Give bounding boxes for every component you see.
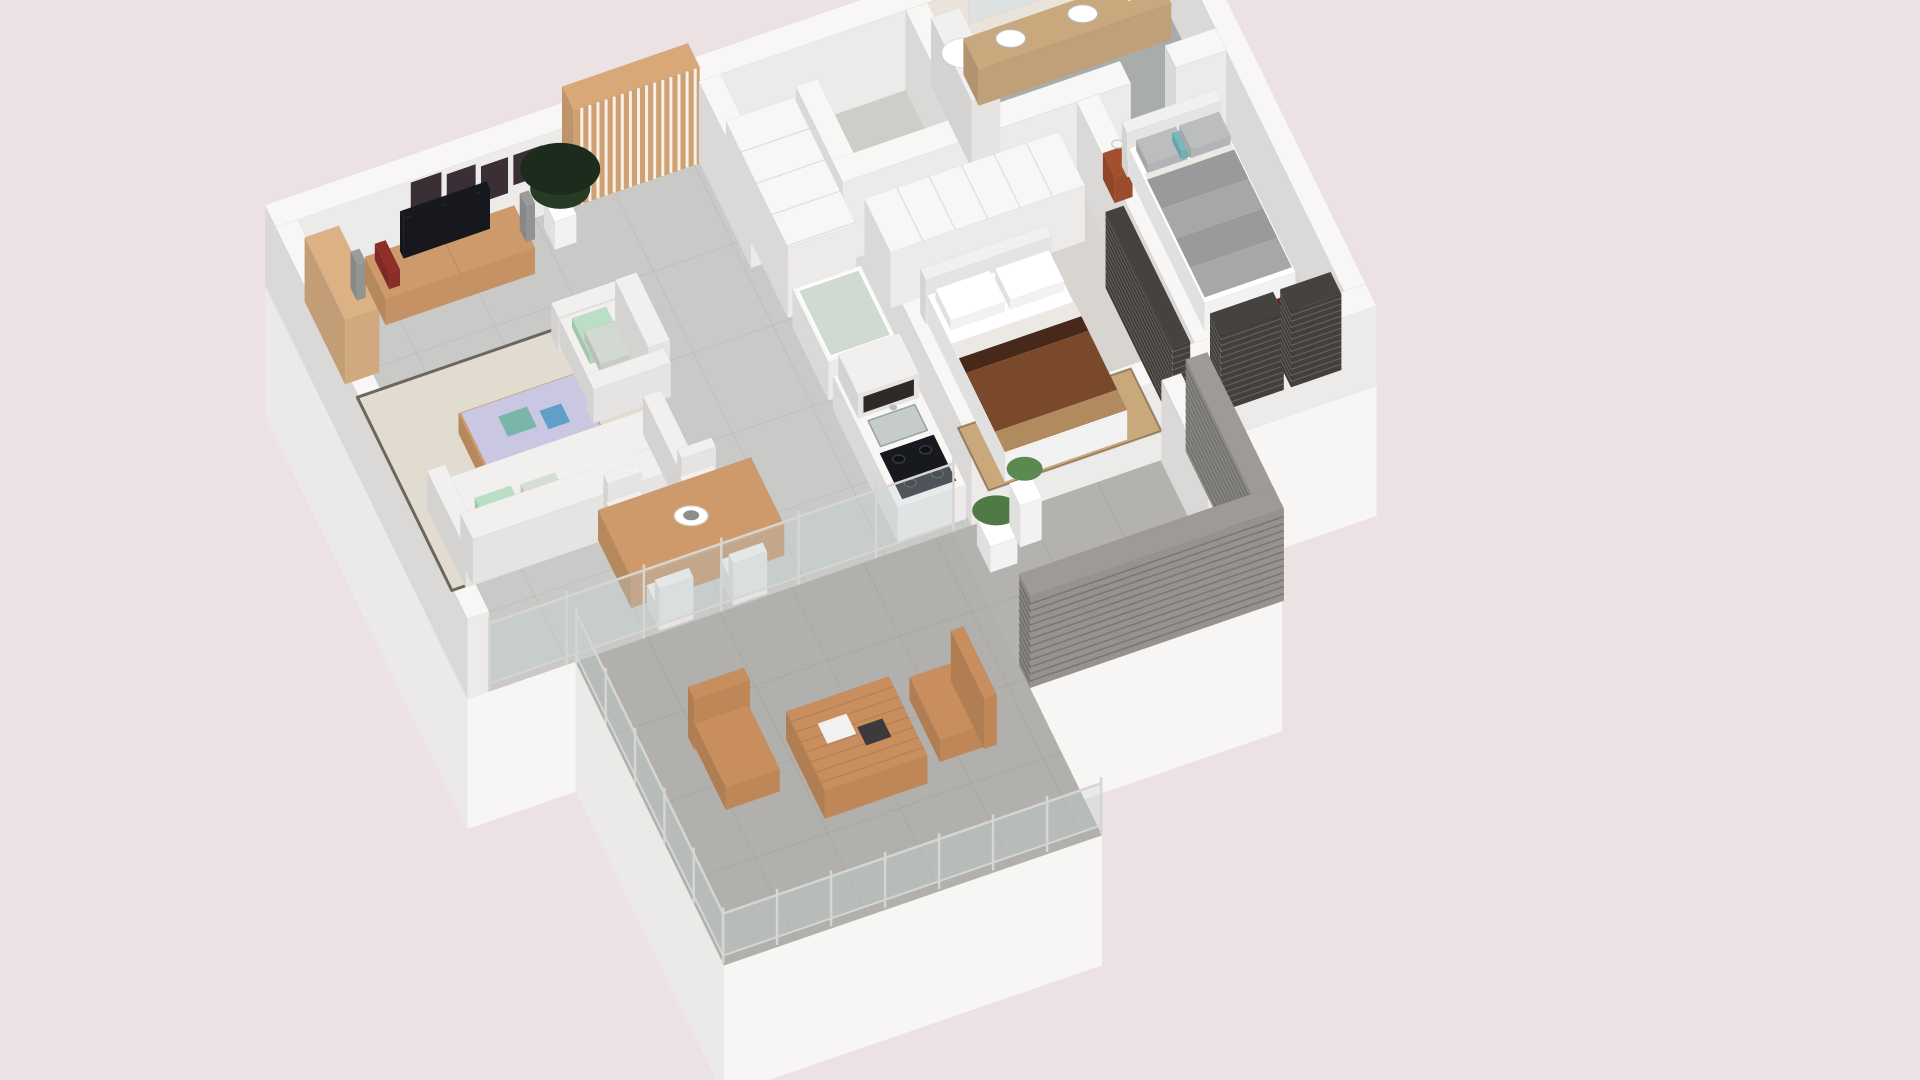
master-louver-wardrobe-2 [1280,272,1341,387]
floorplan-scene-canvas [0,0,1920,1080]
kitchen-faucet [889,404,897,410]
cooktop-burner-1 [893,455,905,463]
plant-foliage-high [520,143,600,195]
bathroom-sink-2 [1068,5,1098,23]
dining-bowl-inner [683,510,699,520]
terrace-plant-2 [1007,457,1043,481]
floorplan-3d-render [0,0,1920,1080]
cooktop-burner-2 [920,446,932,454]
bathroom-sink-1 [996,30,1026,48]
